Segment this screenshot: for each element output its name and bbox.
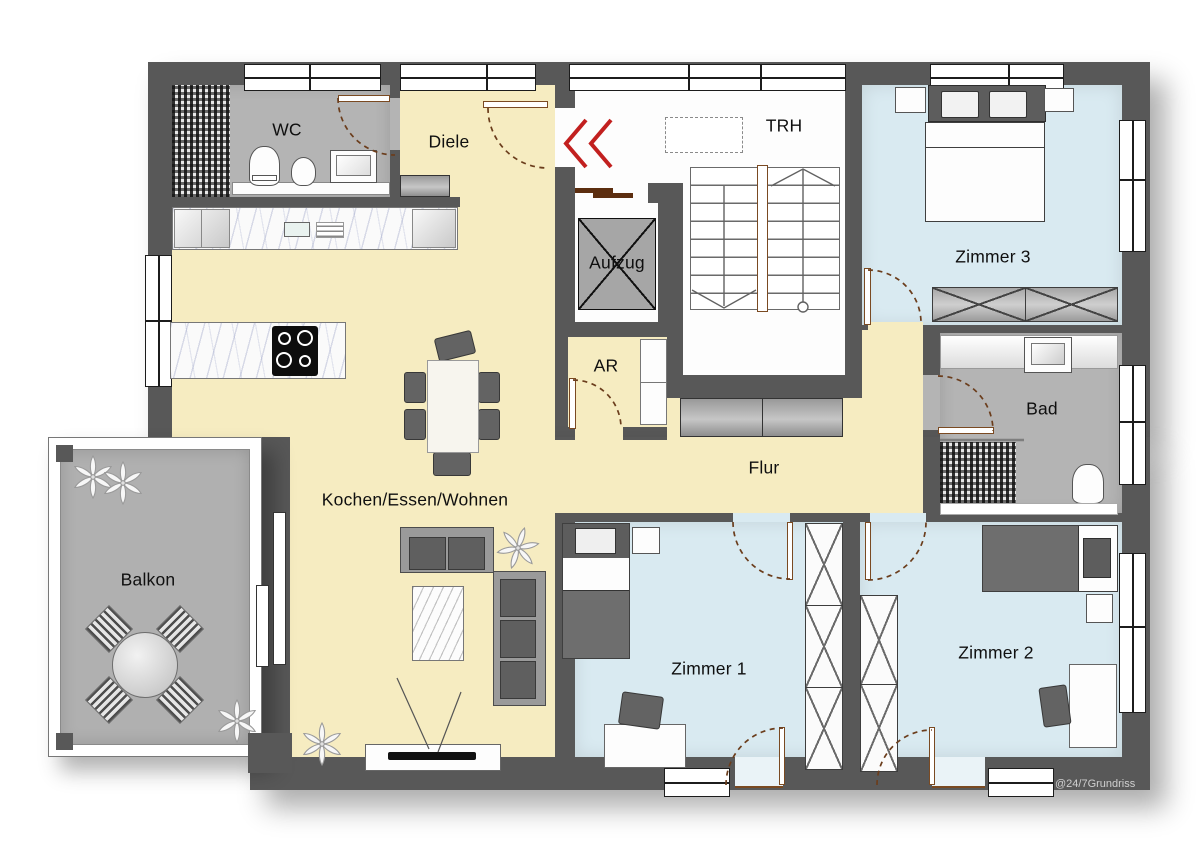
zimmer1-nightstand	[632, 527, 660, 554]
zimmer1-bed	[562, 523, 630, 659]
zimmer2-balconydoor-leaf	[929, 727, 935, 785]
kitchen-dishrack-icon	[316, 222, 344, 238]
window-right-bad	[1119, 365, 1146, 485]
window-bottom-zimmer1	[664, 768, 730, 797]
zimmer1-desk-chair	[618, 691, 664, 730]
zimmer2-desk-chair	[1038, 684, 1071, 728]
window-top-trh	[569, 64, 846, 91]
room-label-ar: AR	[594, 356, 619, 377]
dining-table	[427, 360, 479, 453]
wc-door-leaf	[338, 95, 390, 102]
zimmer2-door-gap	[870, 513, 926, 522]
zimmer1-wardrobe	[805, 523, 843, 770]
window-left-living	[145, 255, 172, 387]
room-label-aufzug: Aufzug	[589, 253, 645, 274]
bad-bottom-ledge	[940, 503, 1118, 515]
kitchen-cabinet-right	[412, 209, 456, 248]
dining-chair	[478, 409, 500, 440]
room-label-zimmer2: Zimmer 2	[958, 643, 1034, 664]
zimmer3-door-leaf	[864, 268, 871, 325]
zimmer2-bed	[982, 525, 1118, 592]
kitchen-sink-icon	[284, 222, 310, 237]
window-bottom-zimmer2	[988, 768, 1054, 797]
bad-sink-icon	[1024, 337, 1072, 373]
wc-sink-icon	[330, 150, 377, 183]
entrance-door-gap	[555, 108, 575, 167]
room-label-trh: TRH	[766, 116, 803, 137]
room-label-balkon: Balkon	[121, 570, 176, 591]
room-label-diele: Diele	[429, 132, 470, 153]
room-label-wohnen: Kochen/Essen/Wohnen	[322, 490, 508, 511]
zimmer3-door-gap	[868, 322, 923, 335]
ar-door-leaf	[569, 378, 576, 429]
bidet-icon	[291, 157, 316, 186]
zimmer3-bed-body	[925, 122, 1045, 222]
tv-icon	[388, 752, 476, 760]
bad-shower-mosaic	[940, 442, 1016, 503]
kitchen-cabinet-divider	[201, 209, 202, 248]
zimmer2-balconydoor-gap	[932, 757, 985, 788]
balcony-wall-chunk	[248, 733, 292, 773]
wc-shower-mosaic	[172, 85, 230, 197]
wc-door-gap	[390, 98, 400, 150]
room-label-wc: WC	[272, 120, 302, 141]
dining-chair	[433, 452, 471, 476]
window-top-diele	[400, 64, 536, 91]
kitchen-island	[170, 322, 346, 379]
rug	[412, 586, 464, 661]
zimmer2-nightstand	[1086, 594, 1113, 623]
elevator-door-bar2	[593, 193, 633, 198]
balcony-sliding-door-panel	[273, 512, 286, 665]
toilet-icon	[1072, 464, 1104, 504]
floor-flur-strip	[862, 330, 923, 398]
zimmer2-wardrobe	[860, 595, 898, 772]
zimmer2-door-leaf	[865, 522, 871, 580]
floor-diele-connector	[460, 197, 555, 207]
diele-bench	[400, 175, 450, 197]
window-right-zimmer3	[1119, 120, 1146, 252]
zimmer1-balconydoor-gap	[735, 757, 783, 788]
bad-door-gap	[923, 375, 940, 430]
ar-cabinet	[640, 339, 667, 425]
bad-door-leaf	[938, 427, 994, 434]
zimmer3-wardrobe	[932, 287, 1118, 322]
zimmer3-pillow	[989, 91, 1027, 118]
floor-flur-left	[555, 440, 667, 513]
room-label-flur: Flur	[749, 458, 780, 479]
watermark: @24/7Grundriss	[1055, 778, 1135, 790]
wall-lift-stub	[648, 183, 683, 203]
zimmer1-desk	[604, 724, 686, 768]
room-label-zimmer1: Zimmer 1	[671, 659, 747, 680]
floor-plan: WC Diele TRH Aufzug Zimmer 3 AR Bad Flur…	[0, 0, 1200, 857]
staircase-divider	[757, 165, 768, 312]
flur-sideboard	[680, 398, 843, 437]
room-label-bad: Bad	[1026, 399, 1058, 420]
entrance-door-leaf	[483, 101, 548, 108]
balcony-sliding-door-panel	[256, 585, 269, 667]
balcony-corner-block	[56, 733, 73, 750]
doormat	[665, 117, 743, 153]
zimmer1-door-leaf	[787, 522, 793, 580]
dining-chair	[478, 372, 500, 403]
sofa-vertical	[493, 571, 546, 706]
zimmer2-desk	[1069, 664, 1117, 748]
zimmer3-nightstand	[895, 87, 926, 113]
zimmer1-balconydoor-leaf	[779, 727, 785, 785]
sofa-horizontal	[400, 527, 494, 573]
dining-chair	[404, 409, 426, 440]
room-label-zimmer3: Zimmer 3	[955, 247, 1031, 268]
balcony-corner-block	[56, 445, 73, 462]
ar-door-gap	[575, 427, 623, 440]
zimmer3-nightstand	[1044, 88, 1074, 112]
cooktop-icon	[272, 326, 318, 376]
dining-chair	[404, 372, 426, 403]
zimmer1-door-gap	[733, 513, 790, 522]
toilet-seat-line	[252, 175, 277, 181]
zimmer3-pillow	[941, 91, 979, 118]
window-top-wc	[244, 64, 381, 91]
window-right-zimmer2	[1119, 553, 1146, 713]
